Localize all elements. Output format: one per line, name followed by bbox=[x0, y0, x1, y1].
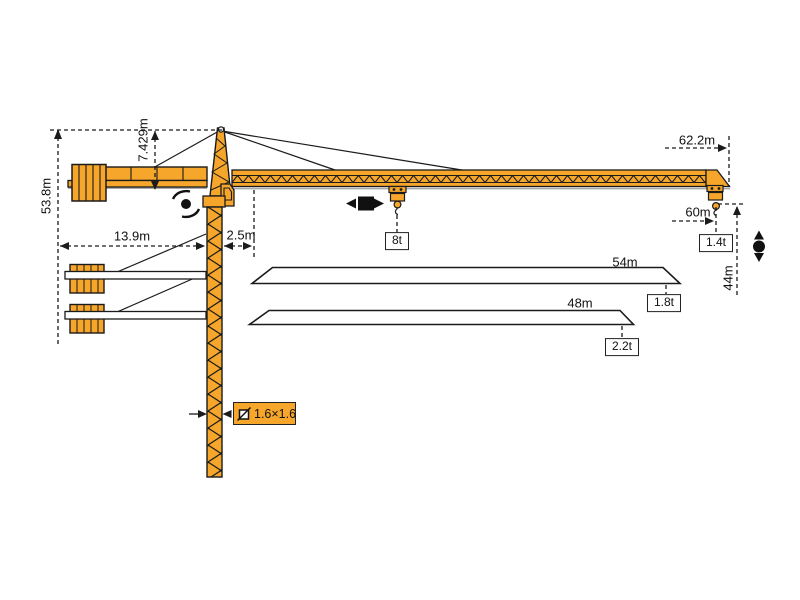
counterweight bbox=[72, 165, 106, 202]
load-max: 8t bbox=[385, 232, 409, 250]
counterweight-variant-1 bbox=[65, 265, 206, 294]
load-tip-60m: 1.4t bbox=[699, 234, 733, 252]
hook-mid bbox=[394, 201, 401, 208]
dim-counter-jib: 13.9m bbox=[114, 230, 150, 243]
trolley-mid bbox=[389, 187, 406, 215]
load-tip-48m: 2.2t bbox=[605, 338, 639, 356]
mast-section-label: 1.6×1.6 bbox=[254, 407, 296, 421]
jib-variant-54m bbox=[252, 268, 680, 284]
load-tip-54m: 1.8t bbox=[647, 294, 681, 312]
dim-working-radius: 60m bbox=[685, 206, 710, 219]
slewing-unit bbox=[203, 196, 225, 207]
mast-cross-section-icon bbox=[237, 406, 252, 422]
jib bbox=[232, 170, 730, 187]
slewing-rotation-icon bbox=[173, 191, 199, 217]
jib-tip bbox=[706, 170, 730, 187]
dim-total-height: 53.8m bbox=[40, 178, 53, 214]
dim-jib-54: 54m bbox=[612, 256, 637, 269]
crane-diagram: 53.8m 7.429m 13.9m 2.5m 62.2m 60m 54m 48… bbox=[0, 0, 800, 600]
dim-jib-length: 62.2m bbox=[679, 134, 715, 147]
dim-slew-offset: 2.5m bbox=[227, 229, 256, 242]
dim-hook-height: 44m bbox=[722, 265, 735, 290]
tower-mast bbox=[203, 196, 225, 477]
mast-section-badge: 1.6×1.6 bbox=[233, 402, 296, 425]
counterweight-variant-2 bbox=[65, 305, 206, 334]
tie-rods bbox=[153, 131, 468, 171]
dim-head-height: 7.429m bbox=[137, 118, 150, 161]
hook-hoist-icon bbox=[753, 231, 765, 263]
trolley-travel-icon bbox=[346, 197, 384, 211]
dim-jib-48: 48m bbox=[567, 297, 592, 310]
jib-variant-48m bbox=[250, 311, 634, 325]
